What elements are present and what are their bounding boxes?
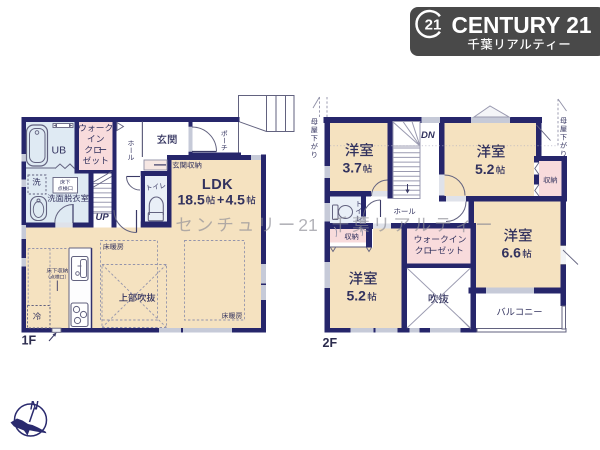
svg-text:DN: DN [421,130,436,141]
svg-text:21: 21 [425,17,442,34]
svg-text:LDK: LDK [202,177,233,193]
svg-text:21: 21 [298,215,317,235]
svg-text:UP: UP [96,212,110,223]
svg-text:18.5: 18.5 [178,192,205,208]
svg-text:6.6: 6.6 [502,245,522,261]
svg-text:5.2: 5.2 [347,288,367,304]
svg-text:4.5: 4.5 [226,192,246,208]
svg-text:5.2: 5.2 [475,161,495,177]
svg-text:UB: UB [52,145,67,157]
svg-text:2F: 2F [323,336,338,350]
svg-text:+: + [217,193,224,207]
svg-text:N: N [30,401,39,413]
svg-text:1F: 1F [22,334,37,348]
svg-text:CENTURY 21: CENTURY 21 [452,12,592,38]
svg-text:3.7: 3.7 [343,160,363,176]
